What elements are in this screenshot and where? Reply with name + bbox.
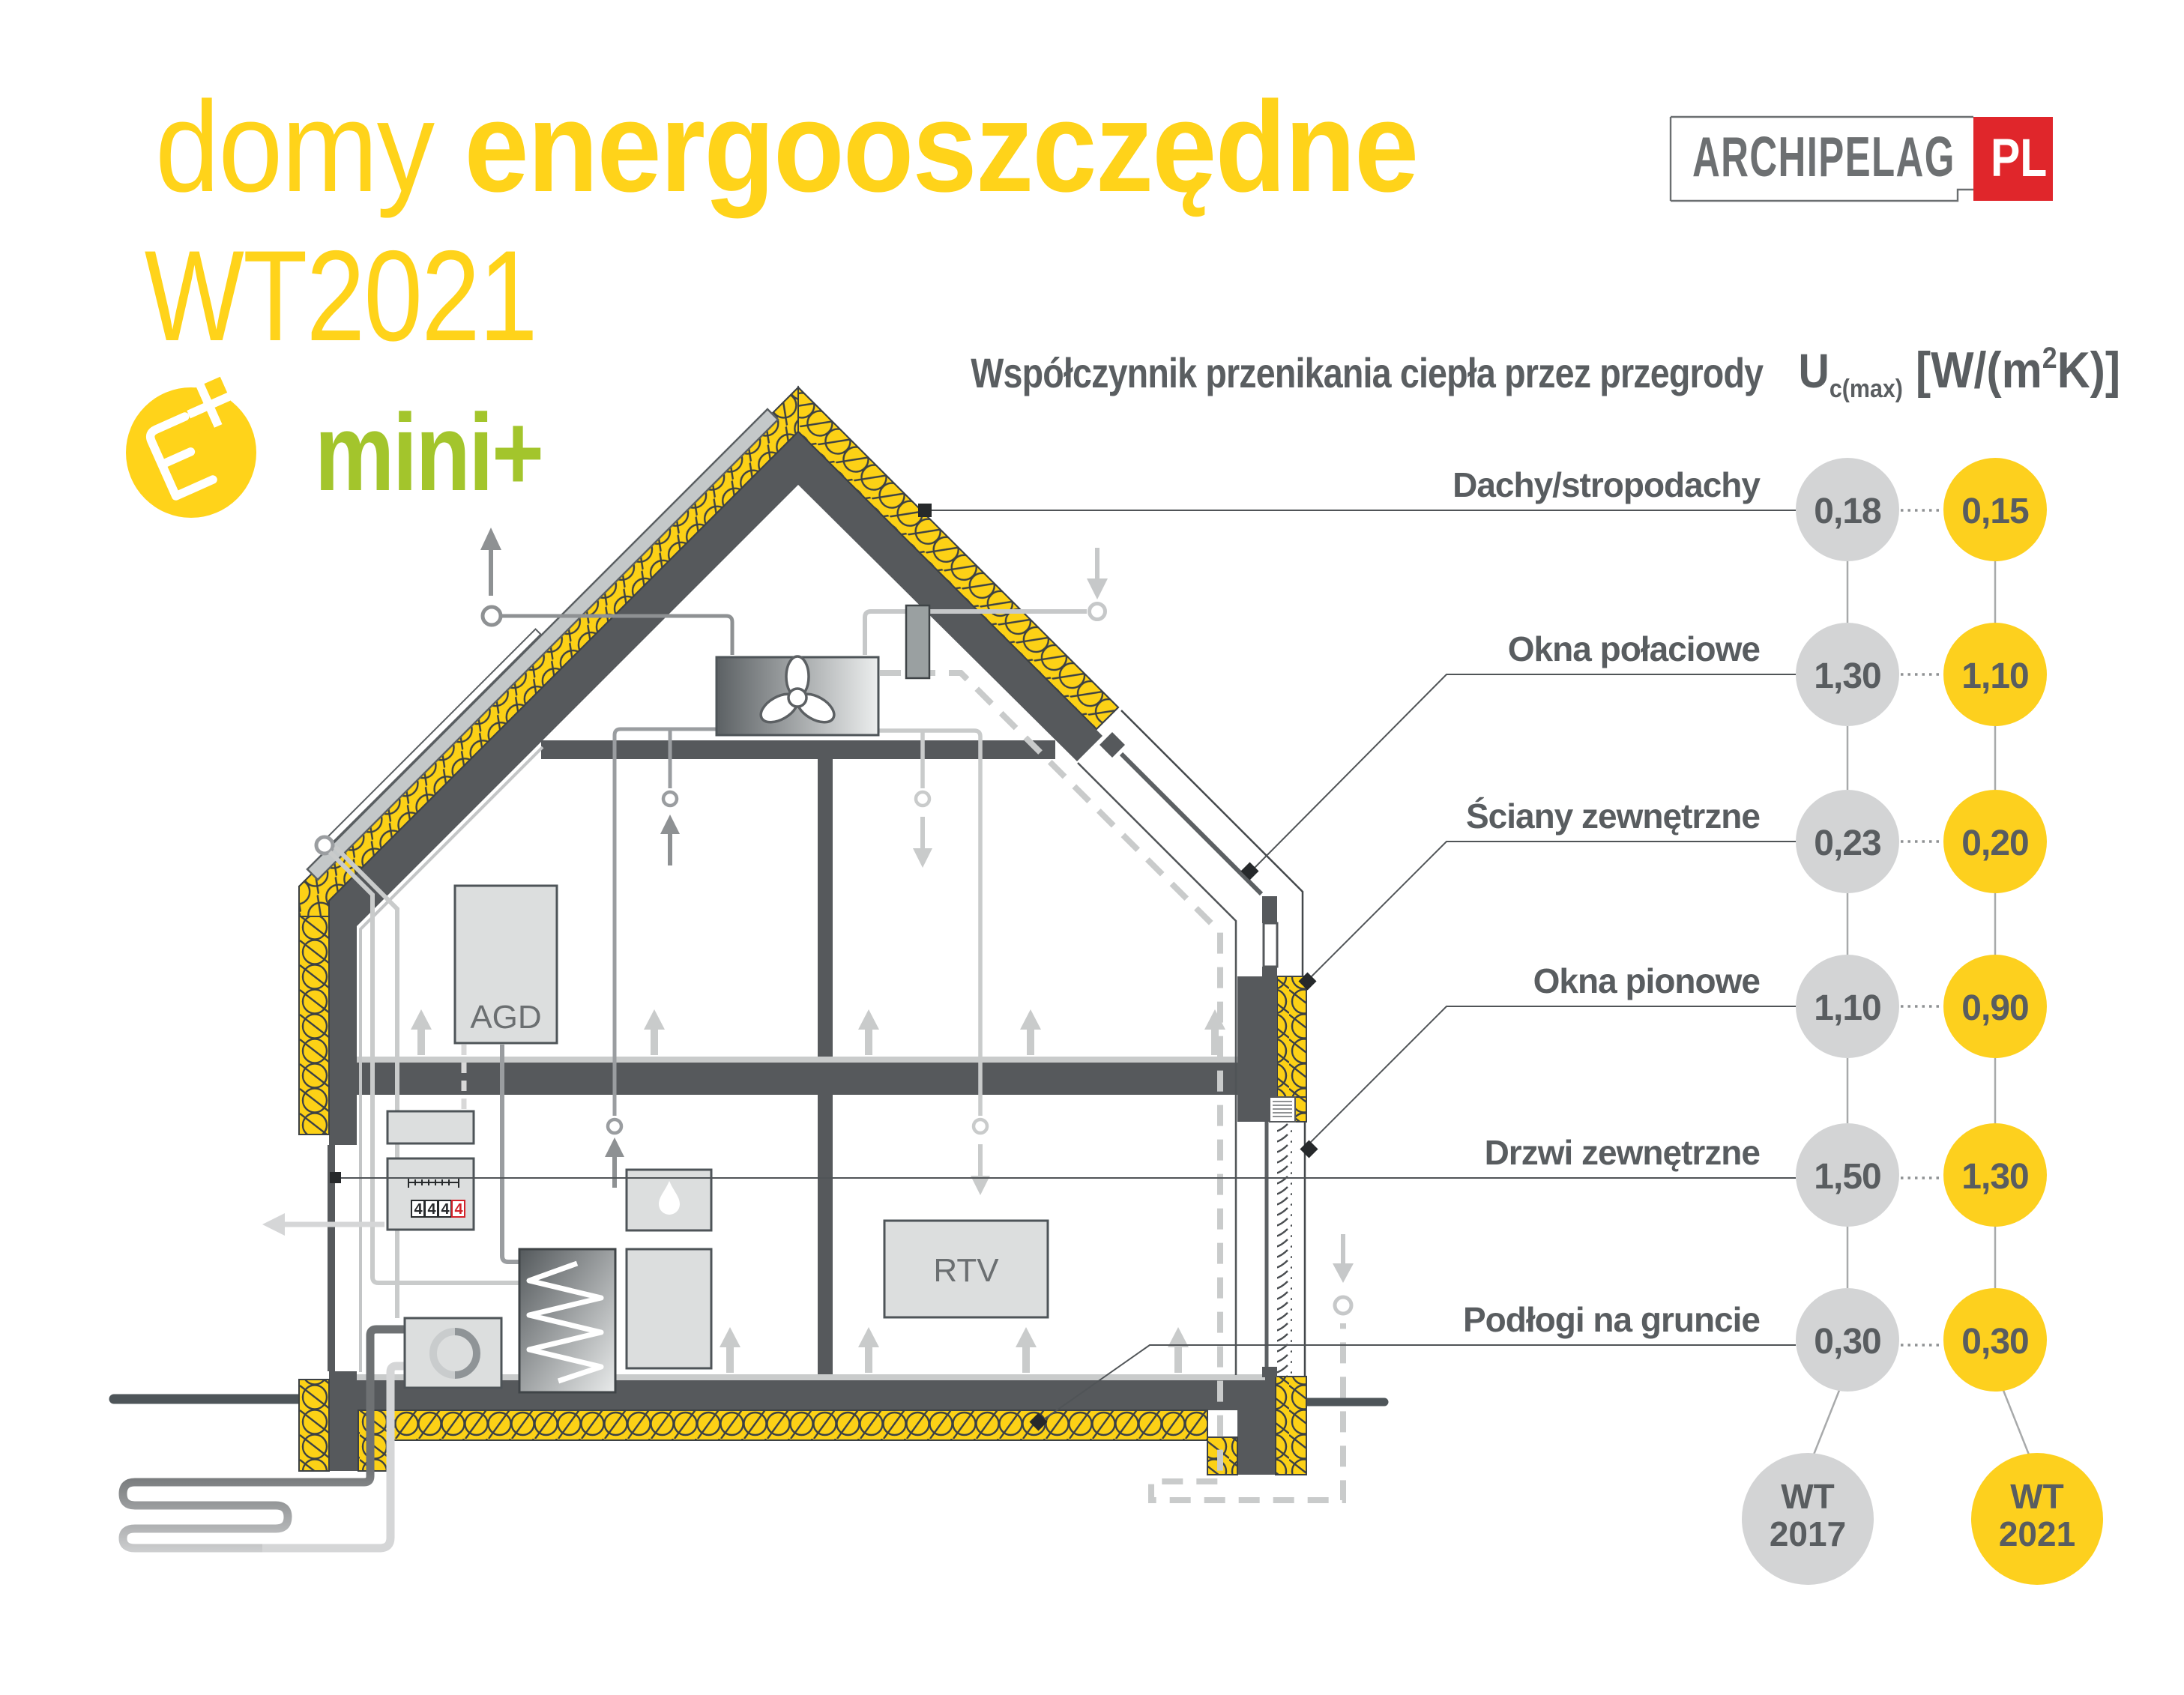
svg-text:PL: PL — [1991, 128, 2047, 187]
svg-text:2021: 2021 — [1999, 1514, 2075, 1553]
svg-text:WT: WT — [1781, 1477, 1835, 1516]
svg-text:0,30: 0,30 — [1814, 1322, 1880, 1362]
svg-text:0,23: 0,23 — [1814, 824, 1880, 863]
svg-text:domy energooszczędne: domy energooszczędne — [155, 74, 1417, 218]
svg-text:0,18: 0,18 — [1814, 492, 1881, 531]
svg-text:ARCHIPELAG: ARCHIPELAG — [1692, 125, 1955, 188]
svg-text:1,10: 1,10 — [1814, 988, 1880, 1028]
svg-text:RTV: RTV — [933, 1252, 999, 1289]
svg-text:Współczynnik przenikania ciepł: Współczynnik przenikania ciepła przez pr… — [971, 349, 1764, 396]
svg-text:1,30: 1,30 — [1961, 1157, 2028, 1197]
svg-text:0,20: 0,20 — [1961, 824, 2028, 863]
svg-text:mini+: mini+ — [315, 392, 543, 514]
svg-text:AGD: AGD — [470, 999, 541, 1036]
svg-text:1,30: 1,30 — [1814, 656, 1880, 696]
svg-text:Okna pionowe: Okna pionowe — [1533, 961, 1761, 1000]
svg-text:Podłogi na gruncie: Podłogi na gruncie — [1463, 1300, 1760, 1339]
svg-text:Okna połaciowe: Okna połaciowe — [1508, 629, 1761, 668]
svg-text:1,10: 1,10 — [1961, 656, 2028, 696]
svg-text:0,30: 0,30 — [1961, 1322, 2028, 1362]
svg-text:Ściany zewnętrzne: Ściany zewnętrzne — [1466, 797, 1760, 836]
svg-text:0,90: 0,90 — [1961, 988, 2028, 1028]
svg-text:Drzwi zewnętrzne: Drzwi zewnętrzne — [1485, 1133, 1761, 1172]
svg-text:4: 4 — [441, 1201, 450, 1218]
svg-text:2017: 2017 — [1770, 1514, 1846, 1553]
svg-text:4: 4 — [414, 1201, 423, 1218]
svg-text:1,50: 1,50 — [1814, 1157, 1880, 1197]
svg-text:4: 4 — [427, 1201, 436, 1218]
svg-text:WT2021: WT2021 — [145, 225, 537, 368]
svg-text:0,15: 0,15 — [1961, 492, 2029, 531]
svg-text:WT: WT — [2010, 1477, 2064, 1516]
svg-text:4: 4 — [454, 1201, 463, 1218]
svg-text:Dachy/stropodachy: Dachy/stropodachy — [1453, 465, 1761, 504]
